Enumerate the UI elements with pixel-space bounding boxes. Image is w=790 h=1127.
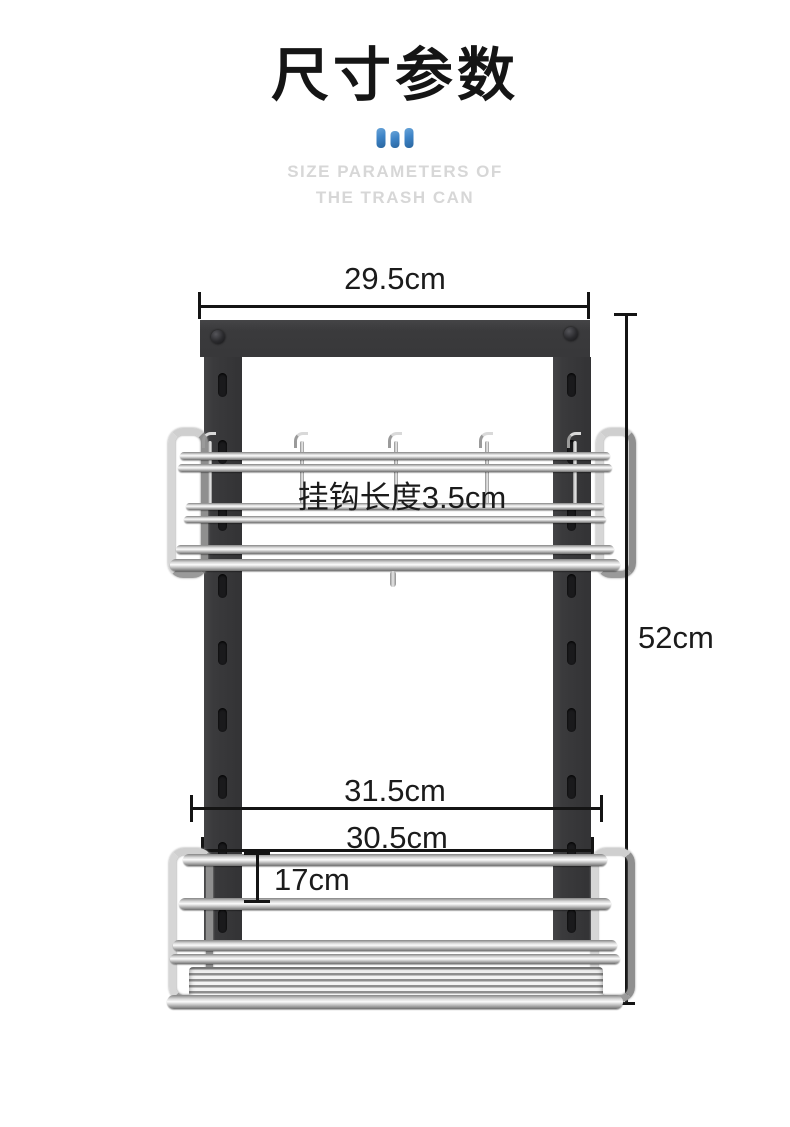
dim-tick — [614, 313, 637, 316]
page-title: 尺寸参数 — [271, 28, 519, 112]
subtitle-line-2: THE TRASH CAN — [0, 188, 790, 208]
basket-rail — [170, 954, 620, 964]
basket-rail — [173, 940, 617, 951]
rail-slot — [567, 775, 576, 799]
basket-center-wire — [390, 571, 396, 587]
hook-tip — [479, 432, 493, 448]
dim-tick — [244, 900, 270, 903]
rail-slot — [218, 775, 227, 799]
screw-icon — [211, 330, 225, 344]
rail-slot — [567, 708, 576, 732]
three-bars-icon — [377, 128, 414, 148]
rail-slot — [567, 574, 576, 598]
dim-top-width-label: 29.5cm — [344, 261, 446, 297]
hook-length-label: 挂钩长度3.5cm — [298, 472, 506, 517]
dim-outer-width-line — [192, 807, 603, 810]
basket-rail — [178, 464, 612, 472]
hook-tip — [202, 432, 216, 448]
rail-slot — [567, 373, 576, 397]
hanging-hook — [573, 441, 577, 507]
basket-rail — [180, 452, 610, 460]
dim-outer-width-label: 31.5cm — [344, 773, 446, 809]
basket-shelf-rail — [176, 545, 614, 554]
frame-top-bar — [200, 320, 590, 357]
basket-rail — [183, 854, 607, 866]
hanging-hook — [208, 441, 212, 507]
rail-slot — [218, 708, 227, 732]
rail-slot — [218, 641, 227, 665]
screw-icon — [564, 327, 578, 341]
basket-bottom-rail — [167, 995, 623, 1009]
hook-tip — [294, 432, 308, 448]
accent-bar-icon — [405, 128, 414, 148]
dim-top-width-line — [200, 305, 590, 308]
rail-slot — [567, 641, 576, 665]
dim-tick — [198, 292, 201, 319]
subtitle-line-1: SIZE PARAMETERS OF — [0, 162, 790, 182]
dim-total-height-label: 52cm — [638, 620, 714, 656]
accent-bar-icon — [391, 131, 400, 148]
accent-bar-icon — [377, 128, 386, 148]
dim-tick — [600, 795, 603, 822]
size-parameter-infographic: 尺寸参数 SIZE PARAMETERS OF THE TRASH CAN 29… — [0, 0, 790, 1127]
hook-tip — [567, 432, 581, 448]
basket-shelf-rail — [170, 559, 620, 571]
dim-basket-height-label: 17cm — [274, 862, 350, 898]
rail-slot — [218, 574, 227, 598]
hook-tip — [388, 432, 402, 448]
dim-tick — [244, 852, 270, 855]
rail-slot — [218, 373, 227, 397]
dim-basket-height-line — [256, 854, 259, 903]
basket-rail — [184, 516, 606, 523]
lower-basket — [165, 845, 625, 1015]
dim-tick — [587, 292, 590, 319]
dim-tick — [190, 795, 193, 822]
